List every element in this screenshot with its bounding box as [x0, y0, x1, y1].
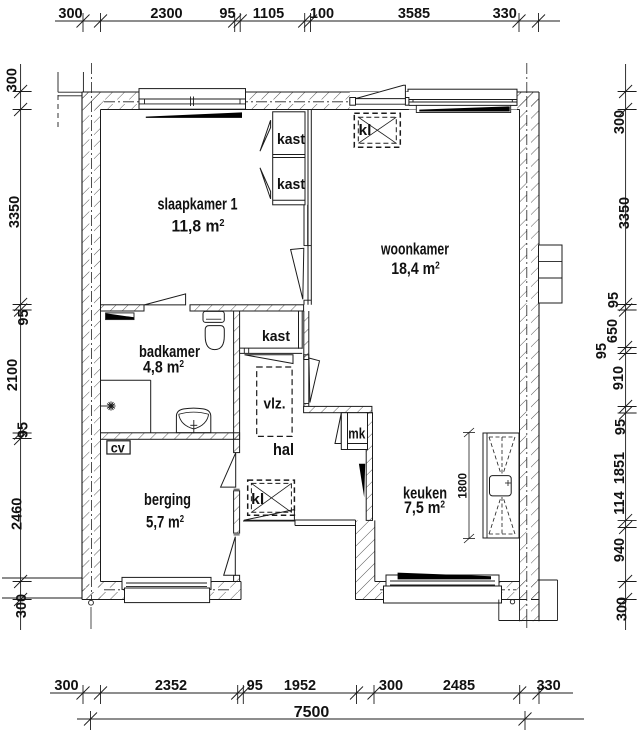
svg-text:100: 100 [310, 6, 334, 22]
svg-text:1800: 1800 [458, 473, 470, 499]
svg-text:300: 300 [612, 110, 628, 134]
svg-text:kl: kl [359, 122, 372, 139]
svg-text:5,7 m2: 5,7 m2 [146, 513, 184, 532]
svg-text:95: 95 [594, 343, 610, 359]
svg-text:vlz.: vlz. [264, 395, 286, 412]
svg-text:300: 300 [379, 678, 403, 694]
svg-text:1952: 1952 [284, 678, 316, 694]
svg-text:2460: 2460 [10, 498, 26, 530]
svg-text:95: 95 [247, 678, 263, 694]
svg-text:slaapkamer 1: slaapkamer 1 [158, 195, 238, 214]
svg-text:3350: 3350 [7, 196, 23, 228]
svg-text:1105: 1105 [253, 6, 284, 22]
svg-text:95: 95 [16, 309, 32, 325]
svg-text:300: 300 [615, 597, 631, 621]
svg-text:3350: 3350 [617, 197, 633, 229]
svg-text:2485: 2485 [443, 678, 475, 694]
svg-text:95: 95 [16, 422, 32, 438]
svg-text:hal: hal [273, 440, 294, 459]
svg-text:330: 330 [536, 678, 560, 694]
svg-text:95: 95 [606, 292, 622, 308]
svg-text:2100: 2100 [5, 359, 21, 391]
svg-text:kast: kast [277, 176, 305, 193]
svg-text:910: 910 [611, 366, 627, 390]
svg-text:650: 650 [605, 319, 621, 343]
svg-text:18,4 m2: 18,4 m2 [391, 259, 440, 278]
svg-text:kl: kl [251, 491, 264, 508]
svg-text:95: 95 [219, 6, 235, 22]
svg-text:2352: 2352 [155, 678, 187, 694]
svg-text:940: 940 [612, 538, 628, 562]
svg-text:2300: 2300 [150, 6, 182, 22]
svg-text:kast: kast [262, 328, 290, 345]
svg-text:95: 95 [613, 419, 629, 435]
svg-text:cv: cv [111, 441, 125, 456]
svg-text:330: 330 [493, 6, 517, 22]
svg-text:300: 300 [58, 6, 82, 22]
svg-text:berging: berging [144, 490, 191, 509]
svg-text:300: 300 [5, 68, 21, 92]
svg-text:woonkamer: woonkamer [380, 239, 449, 258]
svg-text:114: 114 [612, 491, 628, 514]
svg-text:mk: mk [348, 425, 366, 442]
svg-text:3585: 3585 [398, 6, 430, 22]
svg-text:7,5 m2: 7,5 m2 [404, 498, 445, 517]
svg-text:kast: kast [277, 131, 305, 148]
svg-text:4,8 m2: 4,8 m2 [143, 358, 184, 377]
svg-text:7500: 7500 [294, 704, 330, 721]
svg-text:11,8 m2: 11,8 m2 [172, 216, 225, 235]
svg-text:300: 300 [54, 678, 78, 694]
svg-text:1851: 1851 [612, 452, 628, 484]
